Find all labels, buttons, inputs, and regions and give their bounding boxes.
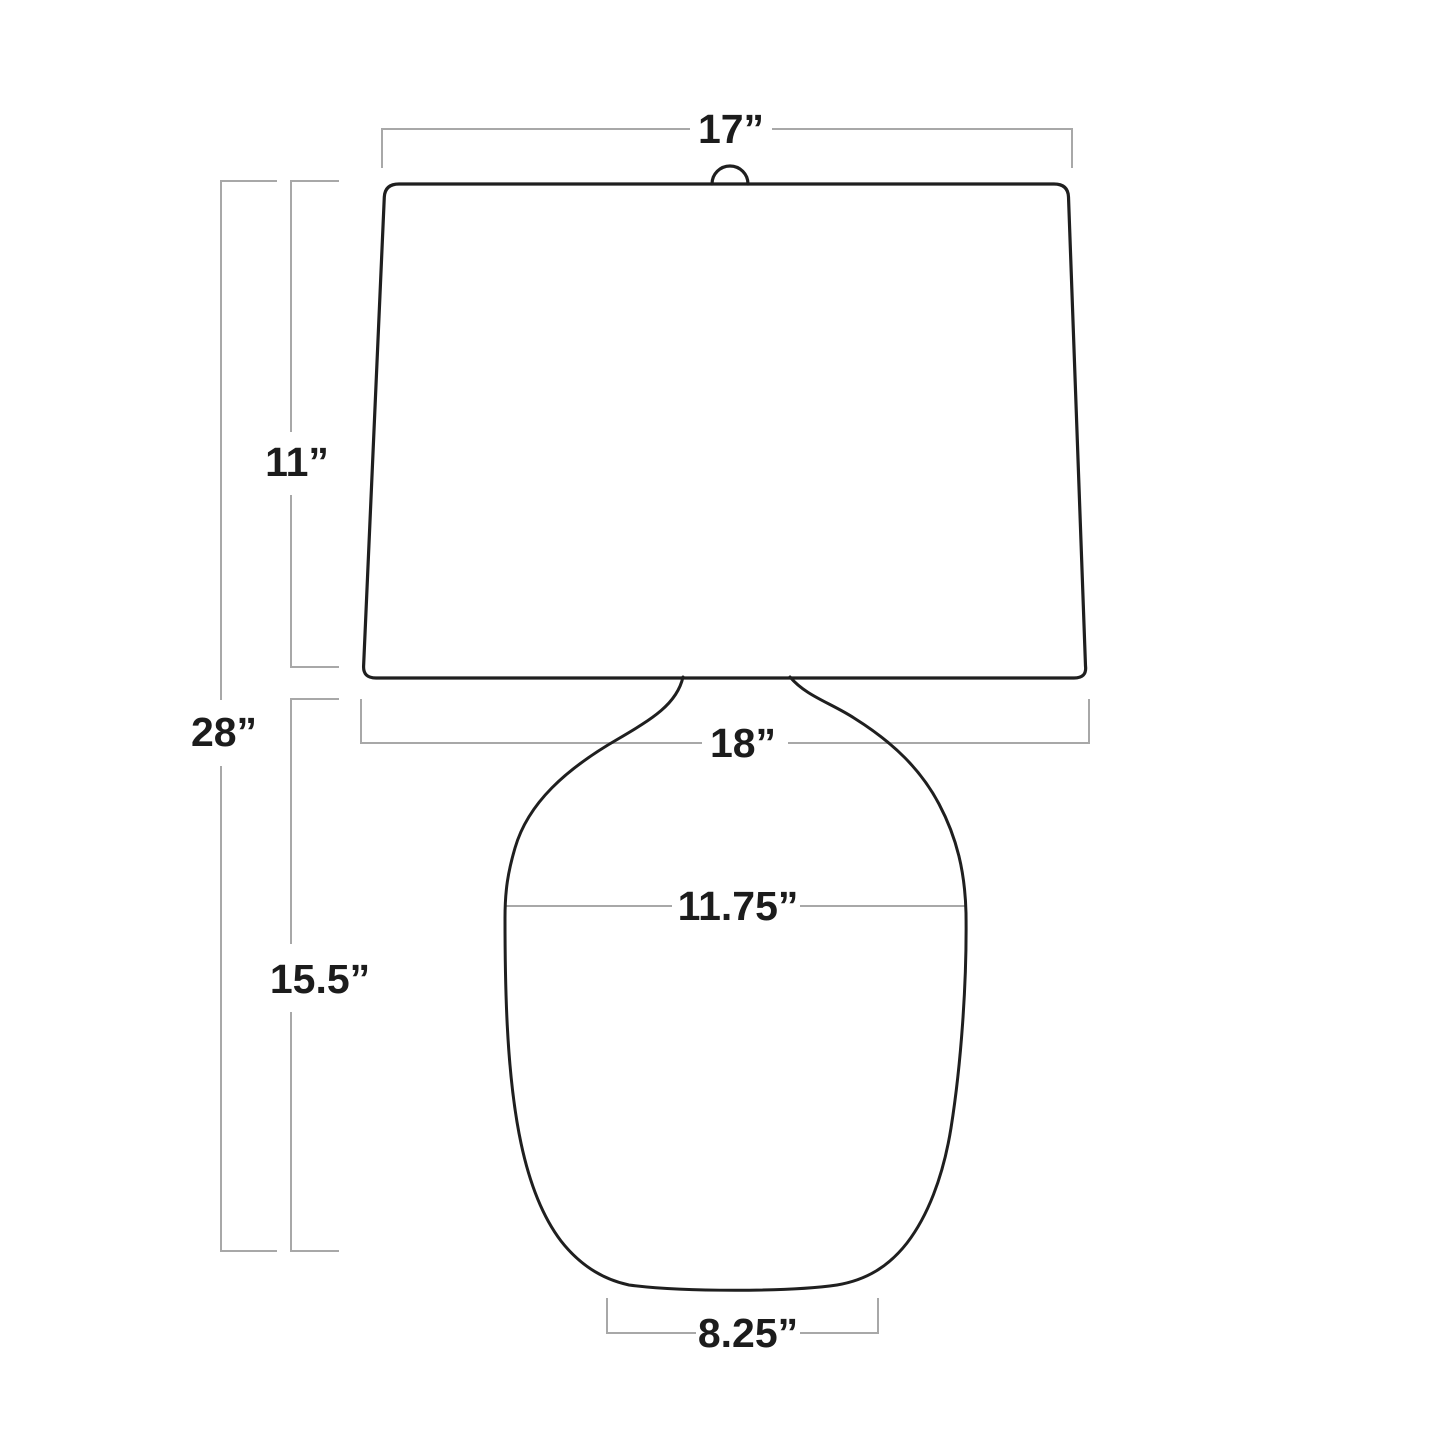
diagram-canvas: 17” 11” 28” 18” 11.75” 15.5” 8.25” <box>0 0 1445 1445</box>
lamp-dimension-diagram: 17” 11” 28” 18” 11.75” 15.5” 8.25” <box>0 0 1445 1445</box>
finial-knob <box>712 166 748 184</box>
label-body-height: 15.5” <box>270 956 370 1002</box>
dim-bracket-shade-height <box>291 181 339 667</box>
lampshade-outline <box>364 184 1086 678</box>
label-overall-height: 28” <box>191 709 257 755</box>
label-shade-height: 11” <box>265 439 329 485</box>
label-base-bottom-width: 8.25” <box>698 1310 798 1356</box>
label-shade-top-width: 17” <box>698 106 764 152</box>
dimension-labels: 17” 11” 28” 18” 11.75” 15.5” 8.25” <box>191 106 798 1356</box>
lamp-base-outline <box>505 677 966 1290</box>
label-shade-bottom-width: 18” <box>710 720 776 766</box>
dimension-lines <box>221 129 1089 1333</box>
label-body-max-width: 11.75” <box>678 883 799 929</box>
